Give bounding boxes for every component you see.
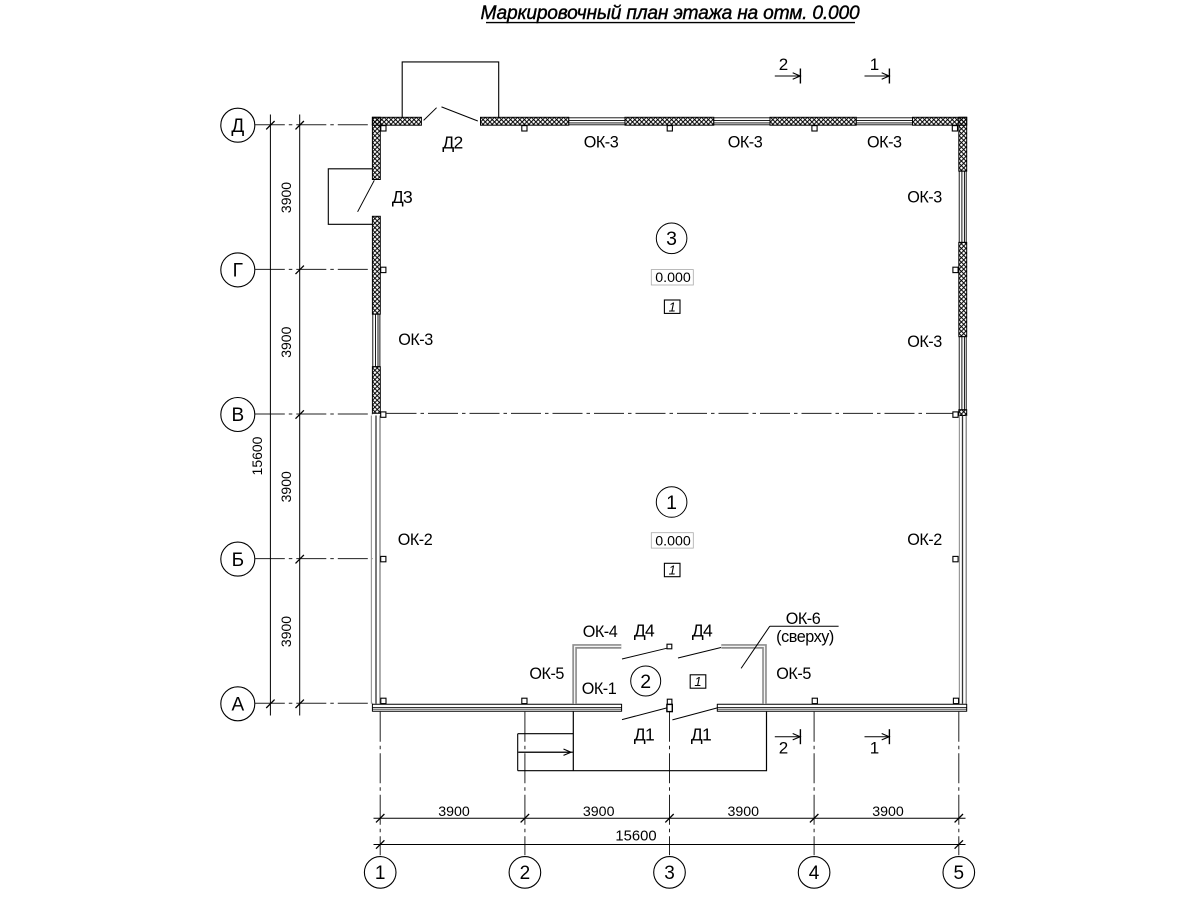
- svg-text:3: 3: [664, 863, 675, 884]
- svg-text:ОК-5: ОК-5: [529, 665, 564, 683]
- svg-text:ОК-2: ОК-2: [907, 531, 942, 549]
- svg-text:3900: 3900: [278, 326, 294, 357]
- svg-text:1: 1: [666, 492, 677, 514]
- svg-text:3900: 3900: [872, 804, 904, 820]
- svg-text:Д3: Д3: [392, 187, 412, 207]
- svg-text:Маркировочный план этажа на от: Маркировочный план этажа на отм. 0.000: [481, 3, 860, 24]
- svg-text:4: 4: [809, 863, 820, 884]
- svg-text:3900: 3900: [438, 804, 470, 820]
- svg-text:ОК-3: ОК-3: [398, 331, 433, 349]
- svg-text:1: 1: [669, 563, 676, 578]
- svg-text:15600: 15600: [249, 436, 265, 475]
- svg-text:ОК-3: ОК-3: [728, 133, 763, 151]
- svg-text:3: 3: [666, 228, 677, 250]
- svg-text:ОК-4: ОК-4: [583, 623, 618, 641]
- svg-text:ОК-3: ОК-3: [867, 133, 902, 151]
- svg-text:1: 1: [375, 863, 386, 884]
- svg-text:3900: 3900: [728, 804, 760, 820]
- svg-text:Д4: Д4: [634, 620, 655, 640]
- svg-text:Д1: Д1: [634, 724, 654, 744]
- svg-text:Д2: Д2: [442, 132, 462, 152]
- svg-text:2: 2: [640, 671, 651, 693]
- svg-text:3900: 3900: [278, 616, 294, 647]
- svg-text:Д: Д: [231, 116, 244, 137]
- svg-text:(сверху): (сверху): [776, 628, 834, 646]
- svg-text:А: А: [231, 694, 244, 715]
- svg-text:0.000: 0.000: [655, 533, 691, 549]
- svg-text:1: 1: [870, 55, 879, 74]
- svg-text:ОК-3: ОК-3: [907, 189, 942, 207]
- svg-text:2: 2: [779, 739, 788, 758]
- svg-text:3900: 3900: [278, 471, 294, 502]
- svg-text:Г: Г: [233, 261, 243, 282]
- svg-text:Б: Б: [232, 550, 244, 571]
- svg-text:ОК-6: ОК-6: [786, 610, 821, 628]
- svg-text:1: 1: [870, 739, 879, 758]
- svg-text:3900: 3900: [583, 804, 615, 820]
- svg-text:1: 1: [669, 299, 676, 314]
- svg-text:Д4: Д4: [692, 620, 713, 640]
- svg-text:2: 2: [520, 863, 531, 884]
- svg-text:ОК-1: ОК-1: [582, 680, 617, 698]
- svg-text:15600: 15600: [615, 828, 656, 844]
- svg-text:Д1: Д1: [691, 724, 711, 744]
- svg-text:В: В: [231, 405, 244, 426]
- svg-text:ОК-3: ОК-3: [907, 333, 942, 351]
- svg-text:3900: 3900: [278, 182, 294, 213]
- svg-text:5: 5: [954, 863, 965, 884]
- svg-text:0.000: 0.000: [655, 270, 691, 286]
- svg-text:ОК-2: ОК-2: [398, 531, 433, 549]
- svg-text:1: 1: [694, 674, 701, 689]
- svg-text:ОК-5: ОК-5: [776, 665, 811, 683]
- svg-text:ОК-3: ОК-3: [584, 133, 619, 151]
- svg-text:2: 2: [779, 55, 788, 74]
